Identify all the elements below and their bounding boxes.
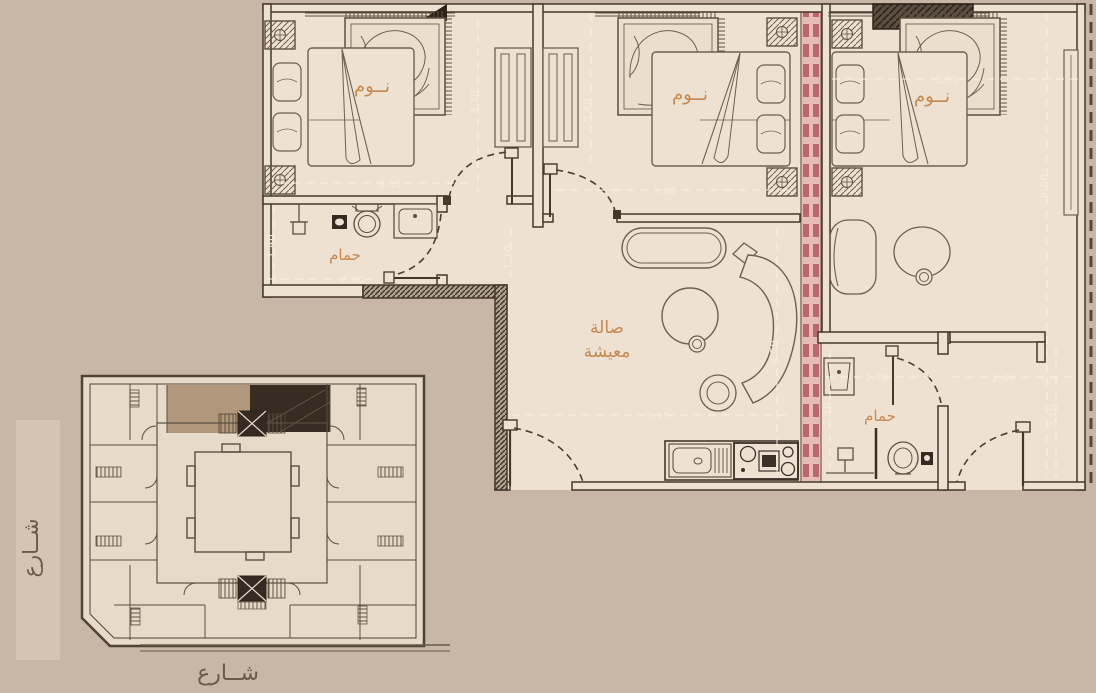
floor-plan-sheet: نــوم نــوم نــوم حمام حمام صالة معيشة 3…	[0, 0, 1096, 693]
bath2-label: حمام	[864, 407, 896, 425]
dim-hall-width: 1.80	[992, 373, 1016, 384]
sink	[394, 204, 437, 238]
dim-corridor: 1.10	[503, 245, 514, 269]
nightstand	[265, 166, 295, 194]
bath1-label: حمام	[329, 246, 361, 264]
street-label-left: شــارع	[19, 519, 43, 578]
nightstand	[832, 20, 862, 48]
bedroom2-label: نــوم	[672, 84, 708, 105]
dim-bedroom2-height: 3.60	[583, 98, 594, 122]
nightstand	[767, 18, 797, 46]
nightstand	[265, 21, 295, 49]
nightstand	[767, 168, 797, 196]
pillow	[273, 113, 301, 151]
dim-bedroom1-width: 3.65	[378, 179, 402, 190]
expansion-joint	[800, 4, 822, 490]
wardrobe	[495, 48, 531, 147]
kitchen-counter	[665, 441, 798, 480]
pillow	[757, 65, 785, 103]
living-label-1: صالة	[590, 318, 624, 338]
dim-bedroom2-width: 3.65	[653, 186, 677, 197]
key-plan	[82, 376, 424, 646]
bedroom1-label: نــوم	[354, 76, 390, 97]
dim-bedroom3-width: 3.65	[935, 75, 959, 86]
pillow	[836, 115, 864, 153]
pillow	[836, 65, 864, 103]
dim-bedroom3-height: 6.00	[1039, 174, 1050, 198]
nightstand	[832, 168, 862, 196]
dim-bath2-width: 1.70	[865, 373, 889, 384]
dim-living-width: 3.95	[646, 411, 670, 422]
bedroom3-label: نــوم	[914, 86, 950, 107]
dim-bath2-height: 2.10	[822, 402, 833, 426]
pillow	[757, 115, 785, 153]
bed	[308, 48, 414, 166]
soap-box	[332, 215, 347, 229]
dim-hall-height: 2.10	[1048, 404, 1059, 428]
pillow	[273, 63, 301, 101]
stair-core-top	[219, 411, 285, 436]
street-label-bottom: شــارع	[197, 661, 259, 686]
wardrobe	[1064, 50, 1078, 215]
dim-bath1-width: 2.40	[341, 275, 365, 286]
dim-bath1-height: 1.40	[266, 234, 277, 258]
dim-bedroom1-height: 3.30	[470, 90, 481, 114]
dim-living-height: 4.50	[769, 340, 780, 364]
living-label-2: معيشة	[584, 342, 631, 362]
wardrobe	[543, 48, 578, 147]
drawing-canvas: نــوم نــوم نــوم حمام حمام صالة معيشة 3…	[0, 0, 1096, 693]
